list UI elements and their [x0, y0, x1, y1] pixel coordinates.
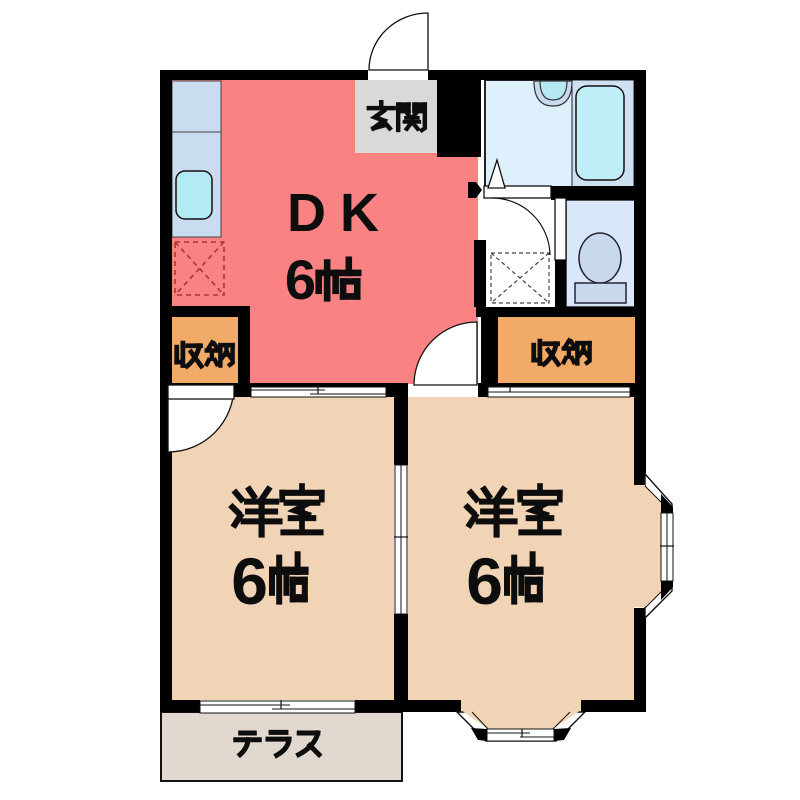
svg-text:6: 6 [285, 248, 316, 311]
svg-text:6: 6 [231, 544, 268, 618]
svg-text:DK: DK [287, 183, 393, 243]
svg-text:6: 6 [466, 544, 503, 618]
